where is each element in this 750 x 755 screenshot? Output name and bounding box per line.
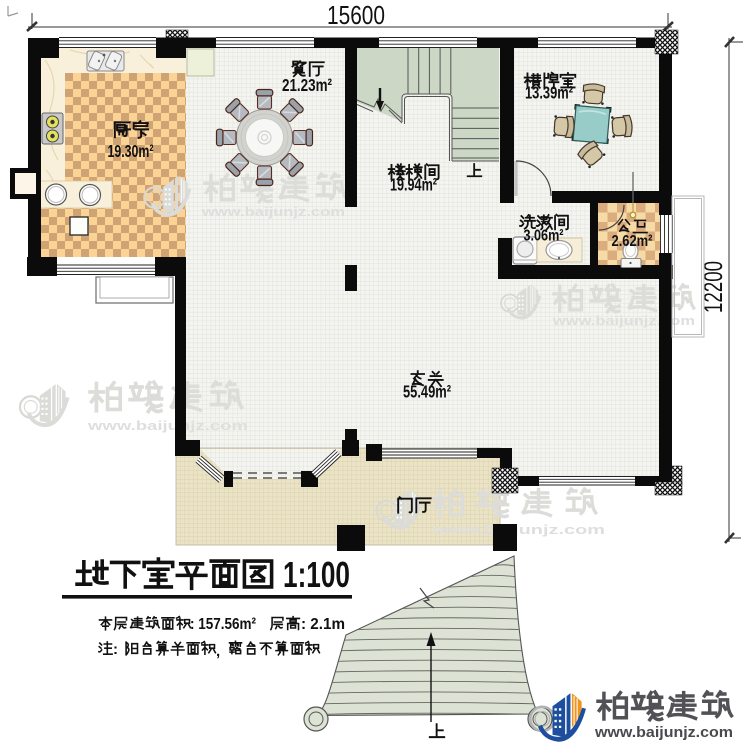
svg-text::: : <box>113 641 118 658</box>
svg-text:1:100: 1:100 <box>283 554 350 595</box>
svg-text:3.06m²: 3.06m² <box>524 228 564 245</box>
svg-text:www.baijunjz.com: www.baijunjz.com <box>552 313 695 328</box>
svg-text:: 2.1m: : 2.1m <box>301 616 345 633</box>
svg-text:www.baijunjz.com: www.baijunjz.com <box>201 204 345 219</box>
svg-text:www.baijunjz.com: www.baijunjz.com <box>87 418 248 433</box>
svg-text:21.23m²: 21.23m² <box>282 75 332 95</box>
svg-text:19.30m²: 19.30m² <box>108 141 154 161</box>
svg-text:www.baijunjz.com: www.baijunjz.com <box>594 724 733 741</box>
svg-text:www.baijunjz.com: www.baijunjz.com <box>431 522 605 537</box>
svg-text:13.39m²: 13.39m² <box>525 83 573 103</box>
svg-text:2.62m²: 2.62m² <box>612 233 653 250</box>
svg-text:: 157.56m²: : 157.56m² <box>190 616 256 633</box>
svg-text:12200: 12200 <box>698 261 728 313</box>
svg-text:,: , <box>216 643 220 660</box>
svg-text:19.94m²: 19.94m² <box>390 175 437 195</box>
svg-text:55.49m²: 55.49m² <box>403 382 451 402</box>
svg-text:15600: 15600 <box>327 0 385 30</box>
